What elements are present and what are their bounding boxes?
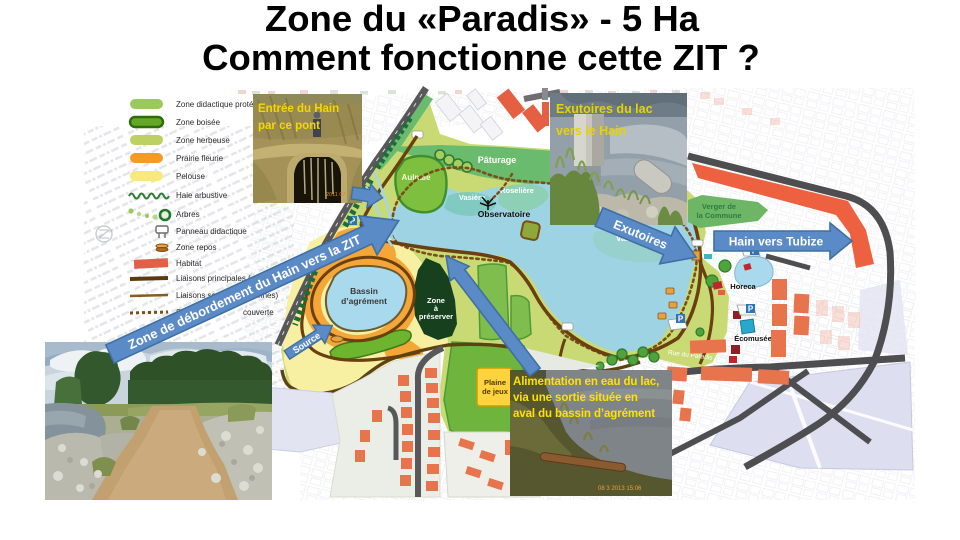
svg-text:P: P (748, 305, 754, 314)
svg-text:Observatoire: Observatoire (478, 209, 531, 219)
svg-text:2011 07 7: 2011 07 7 (326, 192, 350, 198)
svg-text:Pâturage: Pâturage (478, 155, 517, 165)
svg-text:Habitat: Habitat (176, 259, 202, 268)
svg-text:Arbres: Arbres (176, 210, 200, 219)
svg-text:aval du bassin d’agrément: aval du bassin d’agrément (513, 408, 655, 420)
svg-text:Panneau didactique: Panneau didactique (176, 227, 247, 236)
svg-text:Vasière: Vasière (459, 193, 485, 202)
svg-text:Haie arbustive: Haie arbustive (176, 191, 228, 200)
svg-text:Prairie fleurie: Prairie fleurie (176, 154, 224, 163)
svg-text:d’agrément: d’agrément (341, 296, 387, 306)
svg-text:Zone repos: Zone repos (176, 243, 216, 252)
svg-text:Pelouse: Pelouse (176, 172, 205, 181)
svg-text:la Commune: la Commune (696, 211, 741, 220)
svg-text:Exutoires du lac: Exutoires du lac (556, 102, 653, 116)
svg-text:Comment fonctionne cette ZIT ?: Comment fonctionne cette ZIT ? (202, 37, 760, 78)
svg-text:Entrée du Hain: Entrée du Hain (258, 103, 339, 115)
svg-text:Hain vers Tubize: Hain vers Tubize (729, 235, 824, 249)
svg-text:Écomusée: Écomusée (734, 334, 772, 343)
svg-text:Horeca: Horeca (730, 282, 756, 291)
svg-text:Zone herbeuse: Zone herbeuse (176, 136, 230, 145)
svg-text:Roselière: Roselière (500, 186, 534, 195)
svg-text:08 3 2013 15:06: 08 3 2013 15:06 (598, 486, 642, 492)
svg-text:P: P (678, 315, 684, 324)
svg-text:Zone du «Paradis» - 5 Ha: Zone du «Paradis» - 5 Ha (265, 0, 700, 39)
svg-text:Zone boisée: Zone boisée (176, 118, 221, 127)
svg-text:Verger de: Verger de (702, 202, 736, 211)
svg-text:par ce pont: par ce pont (258, 120, 320, 132)
svg-text:de jeux: de jeux (482, 387, 509, 396)
svg-text:vers le Hain: vers le Hain (556, 124, 626, 138)
svg-text:préserver: préserver (419, 312, 453, 321)
svg-text:couverte: couverte (243, 308, 274, 317)
svg-text:Zone didactique protég: Zone didactique protég (176, 100, 258, 109)
svg-text:Alimentation en eau du lac,: Alimentation en eau du lac, (513, 376, 659, 388)
svg-text:Bassin: Bassin (350, 286, 378, 296)
svg-text:Plaine: Plaine (484, 378, 506, 387)
svg-text:via une sortie située en: via une sortie située en (513, 392, 638, 404)
